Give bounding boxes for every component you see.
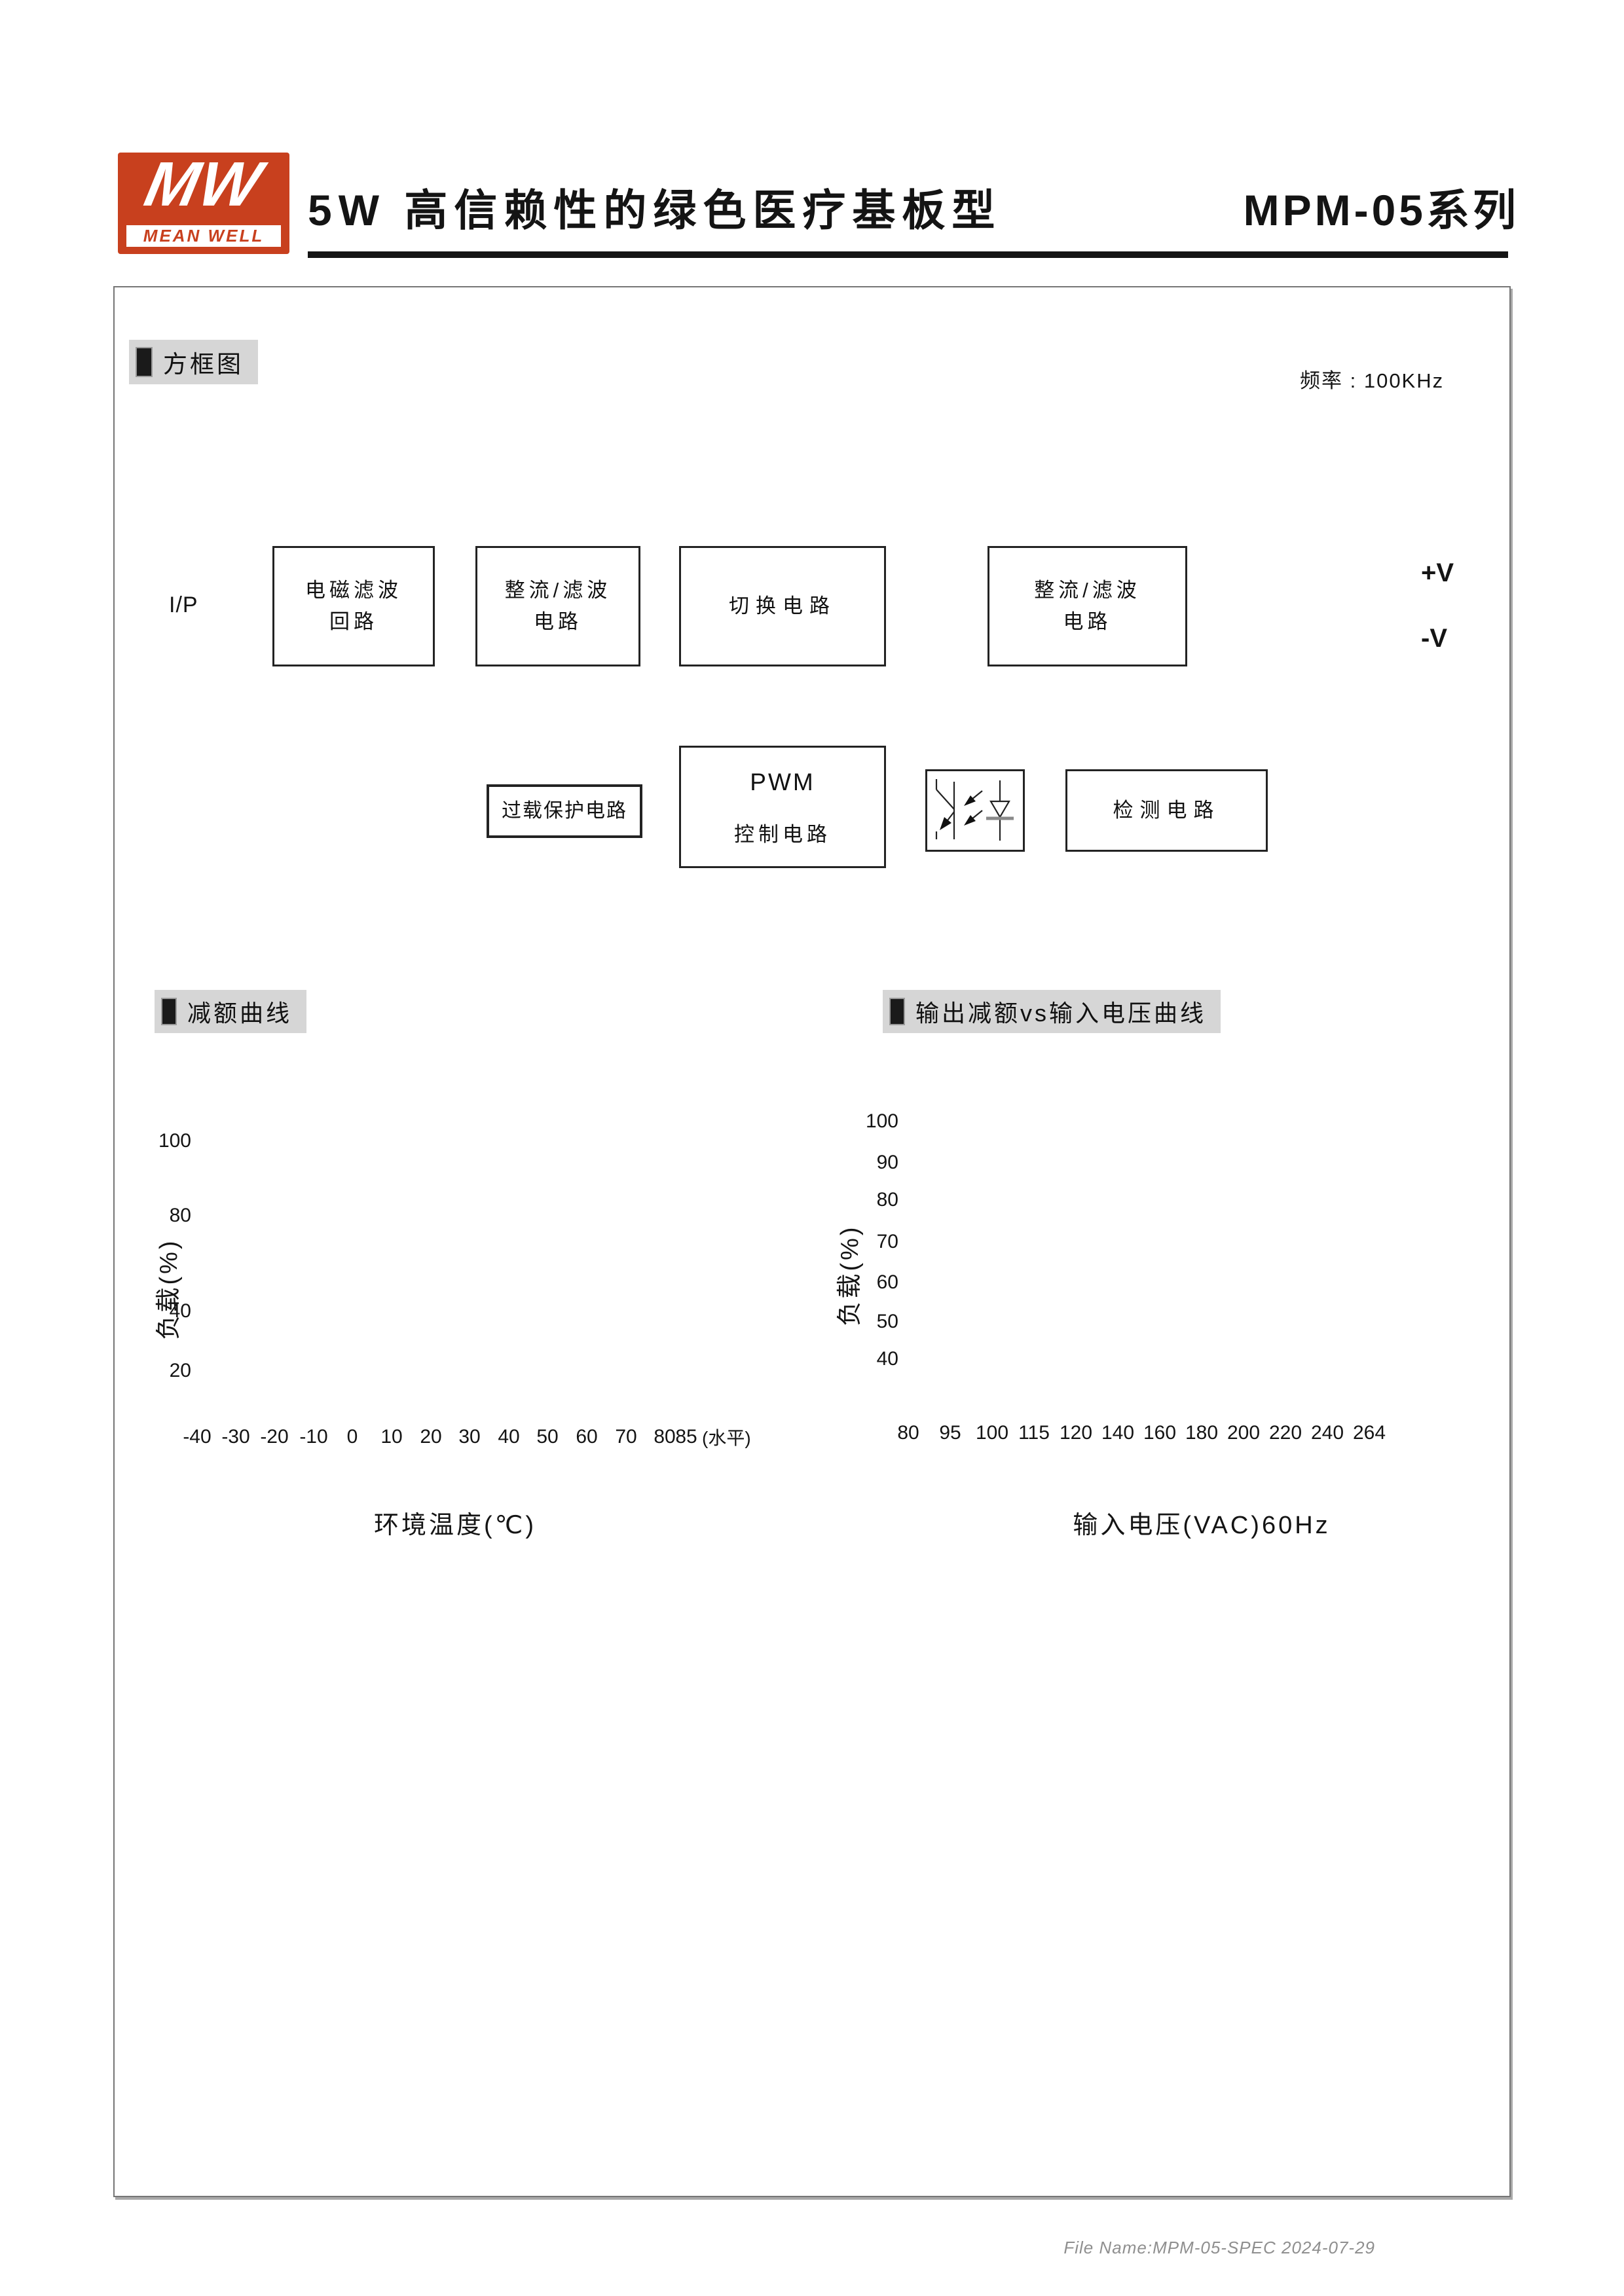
series-name: MPM-05系列 <box>1113 175 1519 238</box>
file-name-footer: File Name:MPM-05-SPEC 2024-07-29 <box>1035 2238 1375 2258</box>
emi-filter-box: 电磁滤波 回路 <box>272 546 435 666</box>
logo-name: MEAN WELL <box>143 226 264 246</box>
rectifier-filter-box: 整流/滤波 电路 <box>475 546 640 666</box>
x-tick: -10 <box>299 1426 327 1448</box>
x-tick: -20 <box>260 1426 288 1448</box>
y-tick: 40 <box>853 1347 898 1372</box>
pwm-label: PWM <box>750 763 815 801</box>
detection-circuit-box: 检测电路 <box>1065 769 1268 852</box>
y-tick: 40 <box>145 1299 191 1324</box>
x-tick: 70 <box>615 1426 637 1448</box>
x-tick: 60 <box>576 1426 597 1448</box>
x-tick: 200 <box>1227 1422 1260 1444</box>
y-tick: 60 <box>853 1270 898 1295</box>
x-tick: 40 <box>498 1426 519 1448</box>
x-tick: 10 <box>380 1426 402 1448</box>
section-label: 方框图 <box>163 344 244 380</box>
switching-circuit-box: 切换电路 <box>679 546 886 666</box>
y-tick: 70 <box>853 1230 898 1254</box>
y-tick: 100 <box>853 1109 898 1134</box>
x-tick: 160 <box>1143 1422 1176 1444</box>
x-tick: 240 <box>1311 1422 1344 1444</box>
y-tick: 80 <box>853 1188 898 1212</box>
section-bullet-icon <box>161 998 177 1025</box>
x-tick: 140 <box>1101 1422 1134 1444</box>
x-tick: 20 <box>420 1426 441 1448</box>
mean-well-logo: MW MEAN WELL <box>118 153 289 254</box>
logo-band: MEAN WELL <box>126 225 281 247</box>
x-tick: 0 <box>347 1426 358 1448</box>
x-tick: 95 <box>939 1422 961 1444</box>
section-label: 减额曲线 <box>187 994 292 1029</box>
section-bullet-icon <box>136 347 153 377</box>
output-rectifier-filter-box: 整流/滤波 电路 <box>987 546 1187 666</box>
y-tick: 50 <box>853 1309 898 1334</box>
x-tick: -40 <box>183 1426 211 1448</box>
pwm-sub-label: 控制电路 <box>734 819 831 850</box>
optocoupler-icon <box>927 771 1023 850</box>
section-bullet-icon <box>889 998 905 1025</box>
x-tick: 85 <box>675 1426 697 1448</box>
x-tick: 180 <box>1185 1422 1218 1444</box>
optocoupler-box <box>925 769 1025 852</box>
section-block-diagram: 方框图 <box>129 340 258 384</box>
x-tick: 264 <box>1353 1422 1386 1444</box>
x-tick: 30 <box>458 1426 480 1448</box>
derating-x-caption: 环境温度(℃) <box>308 1504 602 1540</box>
y-tick: 100 <box>145 1129 191 1154</box>
datasheet-page: MW MEAN WELL 5W 高信赖性的绿色医疗基板型 MPM-05系列 方框… <box>0 0 1624 2296</box>
x-axis-suffix: (水平) <box>702 1427 751 1449</box>
output-neg-label: -V <box>1421 624 1447 653</box>
title-rule <box>308 251 1508 258</box>
section-label: 输出减额vs输入电压曲线 <box>915 994 1206 1029</box>
pwm-control-box: PWM 控制电路 <box>679 746 886 868</box>
output-derating-x-caption: 输入电压(VAC)60Hz <box>1038 1504 1365 1540</box>
y-tick: 90 <box>853 1150 898 1175</box>
overload-protection-box: 过载保护电路 <box>487 784 642 838</box>
y-tick: 80 <box>145 1203 191 1228</box>
x-tick: 50 <box>536 1426 558 1448</box>
x-tick: 220 <box>1269 1422 1302 1444</box>
x-tick: 100 <box>976 1422 1008 1444</box>
x-tick: -30 <box>221 1426 249 1448</box>
x-tick: 120 <box>1060 1422 1092 1444</box>
frequency-note: 频率 : 100KHz <box>1300 364 1444 393</box>
logo-mw-icon: MW <box>110 149 297 221</box>
output-pos-label: +V <box>1421 558 1454 588</box>
input-label: I/P <box>169 592 198 618</box>
section-derating: 减额曲线 <box>155 990 306 1033</box>
x-tick: 80 <box>654 1426 675 1448</box>
x-tick: 115 <box>1018 1422 1050 1444</box>
x-tick: 80 <box>897 1422 919 1444</box>
section-output-derating: 输出减额vs输入电压曲线 <box>883 990 1221 1033</box>
page-title: 5W 高信赖性的绿色医疗基板型 <box>308 175 1001 238</box>
y-tick: 20 <box>145 1358 191 1383</box>
